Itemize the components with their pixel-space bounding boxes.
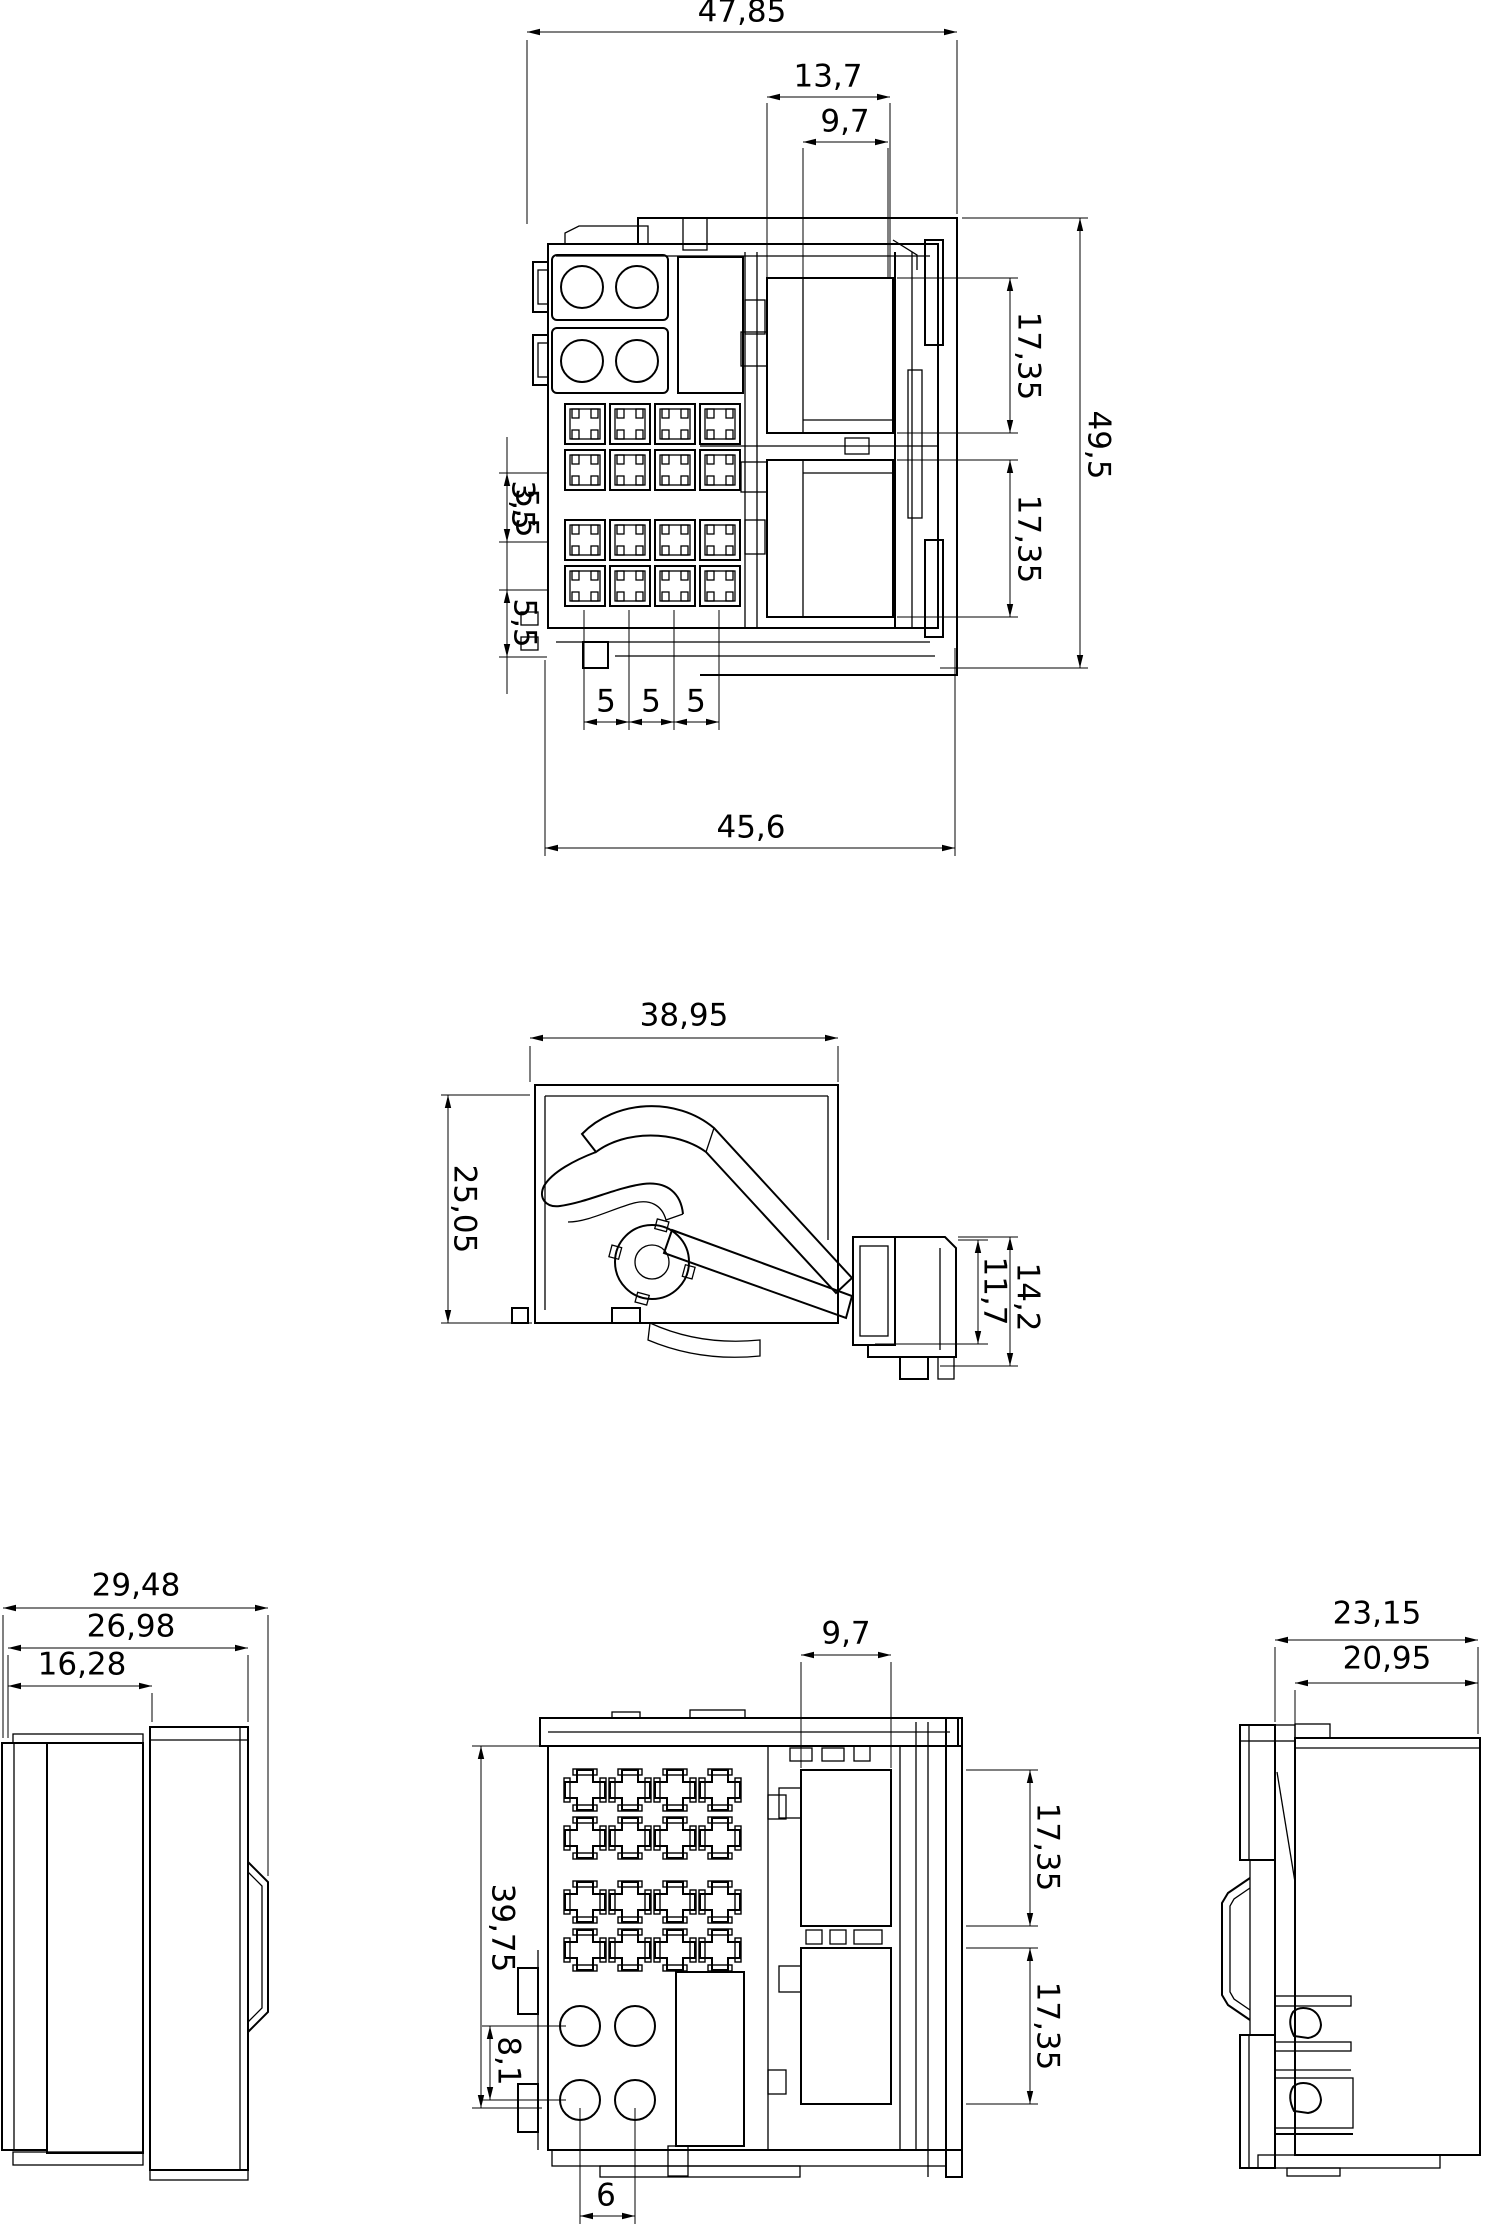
dim-rear-body-height: 39,75 — [487, 1884, 518, 1973]
dim-rear-upper-cavity-height: 17,35 — [1032, 1803, 1063, 1892]
dim-front-overall-height: 49,5 — [1083, 410, 1114, 479]
dim-front-terminal-pitch-3: 5 — [686, 687, 706, 718]
dim-side-lever-width: 38,95 — [640, 1001, 729, 1032]
dim-side-body-height: 25,05 — [449, 1165, 480, 1254]
dim-rear-power-row-pitch: 8,1 — [493, 2036, 524, 2085]
dim-rear-lower-cavity-height: 17,35 — [1032, 1982, 1063, 2071]
rear-view-drawing — [518, 1710, 962, 2177]
dim-rear-cavity-inner-width: 9,7 — [821, 1619, 870, 1650]
dim-left-mid-depth: 26,98 — [87, 1612, 176, 1643]
dim-front-terminal-pitch-1: 5 — [596, 687, 616, 718]
dim-left-overall-depth: 29,48 — [92, 1571, 181, 1602]
rear-view-dimensions — [472, 1655, 1038, 2224]
technical-drawing-sheet: 47,85 13,7 9,7 17,35 17,35 49,5 3,5 5,5 … — [0, 0, 1489, 2229]
dim-front-cavity-inner-width: 9,7 — [820, 107, 869, 138]
dim-front-lower-cavity-height: 17,35 — [1013, 495, 1044, 584]
dim-left-front-depth: 16,28 — [38, 1650, 127, 1681]
dim-front-body-width: 45,6 — [716, 813, 785, 844]
dim-front-row-pitch: 5,5 — [509, 598, 540, 647]
dim-front-cavity-width: 13,7 — [793, 62, 862, 93]
dim-right-inner-depth: 20,95 — [1343, 1644, 1432, 1675]
dim-front-row-pitch-overlap-b: 5,5 — [511, 488, 542, 537]
dim-side-latch-inner-height: 11,7 — [979, 1256, 1010, 1325]
side-view-drawing — [512, 1085, 956, 1379]
dim-rear-power-col-pitch: 6 — [596, 2181, 616, 2212]
left-side-view-drawing — [2, 1727, 268, 2180]
dim-right-overall-depth: 23,15 — [1333, 1599, 1422, 1630]
dim-front-upper-cavity-height: 17,35 — [1013, 312, 1044, 401]
dim-side-latch-outer-height: 14,2 — [1012, 1262, 1043, 1331]
dim-front-terminal-pitch-2: 5 — [641, 687, 661, 718]
right-side-view-drawing — [1222, 1724, 1480, 2176]
drawing-canvas — [0, 0, 1489, 2229]
dim-front-overall-width: 47,85 — [698, 0, 787, 28]
front-view-drawing — [521, 218, 957, 675]
